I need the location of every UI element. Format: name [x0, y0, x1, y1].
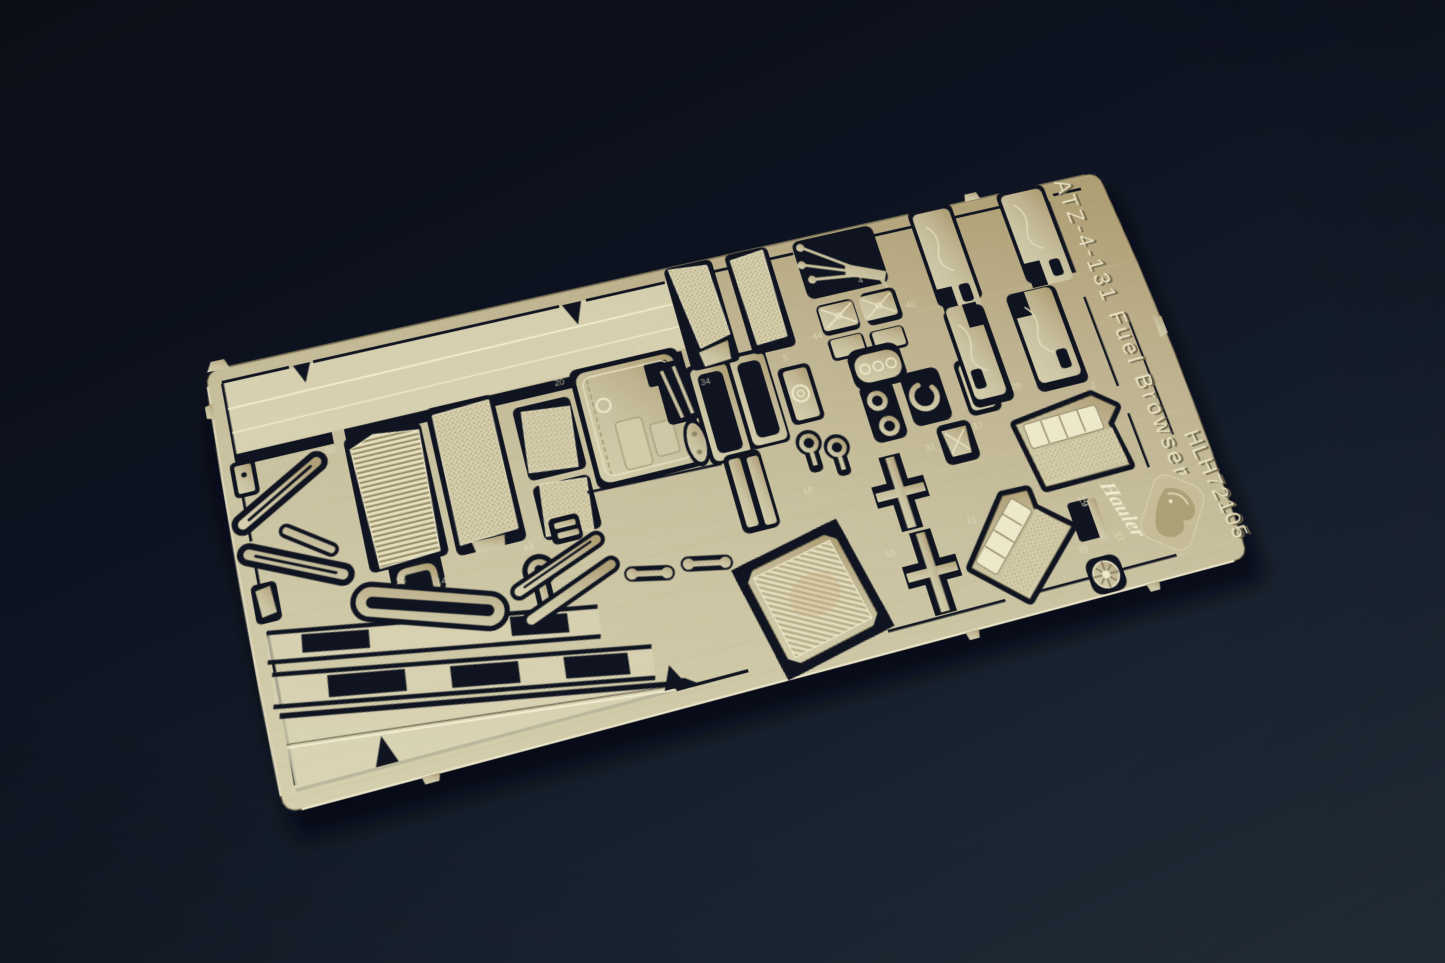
svg-text:30: 30 — [324, 444, 336, 456]
svg-text:20: 20 — [553, 377, 565, 388]
svg-text:14: 14 — [435, 575, 447, 588]
svg-text:43: 43 — [522, 541, 534, 553]
svg-text:13: 13 — [395, 574, 407, 587]
